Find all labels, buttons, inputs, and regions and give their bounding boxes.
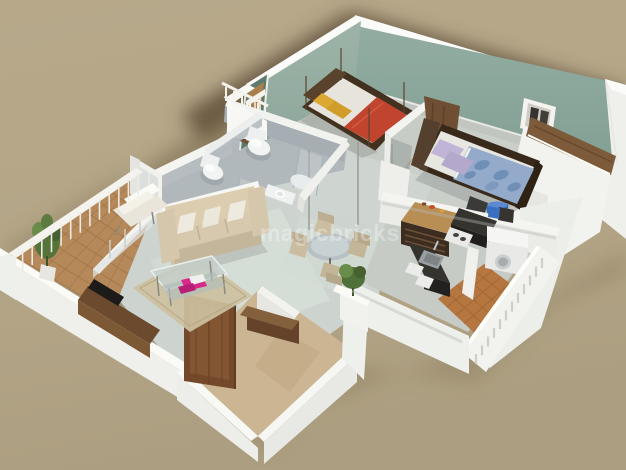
svg-text:magicbricks: magicbricks (260, 220, 400, 246)
